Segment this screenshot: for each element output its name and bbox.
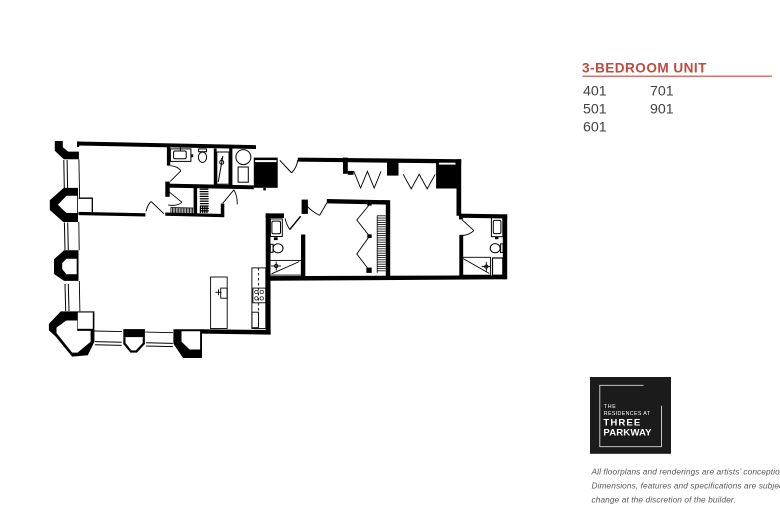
svg-text:RESIDENCES AT: RESIDENCES AT: [604, 411, 651, 417]
svg-text:701: 701: [650, 84, 674, 100]
svg-text:change at the discretion of th: change at the discretion of the builder.: [592, 495, 736, 505]
svg-text:3-BEDROOM UNIT: 3-BEDROOM UNIT: [582, 61, 707, 76]
svg-text:THE: THE: [604, 404, 617, 410]
svg-text:401: 401: [583, 84, 607, 100]
svg-text:Dimensions, features and speci: Dimensions, features and specifications …: [592, 481, 780, 491]
svg-text:PARKWAY: PARKWAY: [603, 428, 652, 439]
svg-text:501: 501: [583, 102, 607, 118]
svg-text:All floorplans and renderings: All floorplans and renderings are artist…: [591, 467, 780, 477]
svg-text:601: 601: [583, 120, 607, 136]
svg-text:901: 901: [650, 102, 674, 118]
